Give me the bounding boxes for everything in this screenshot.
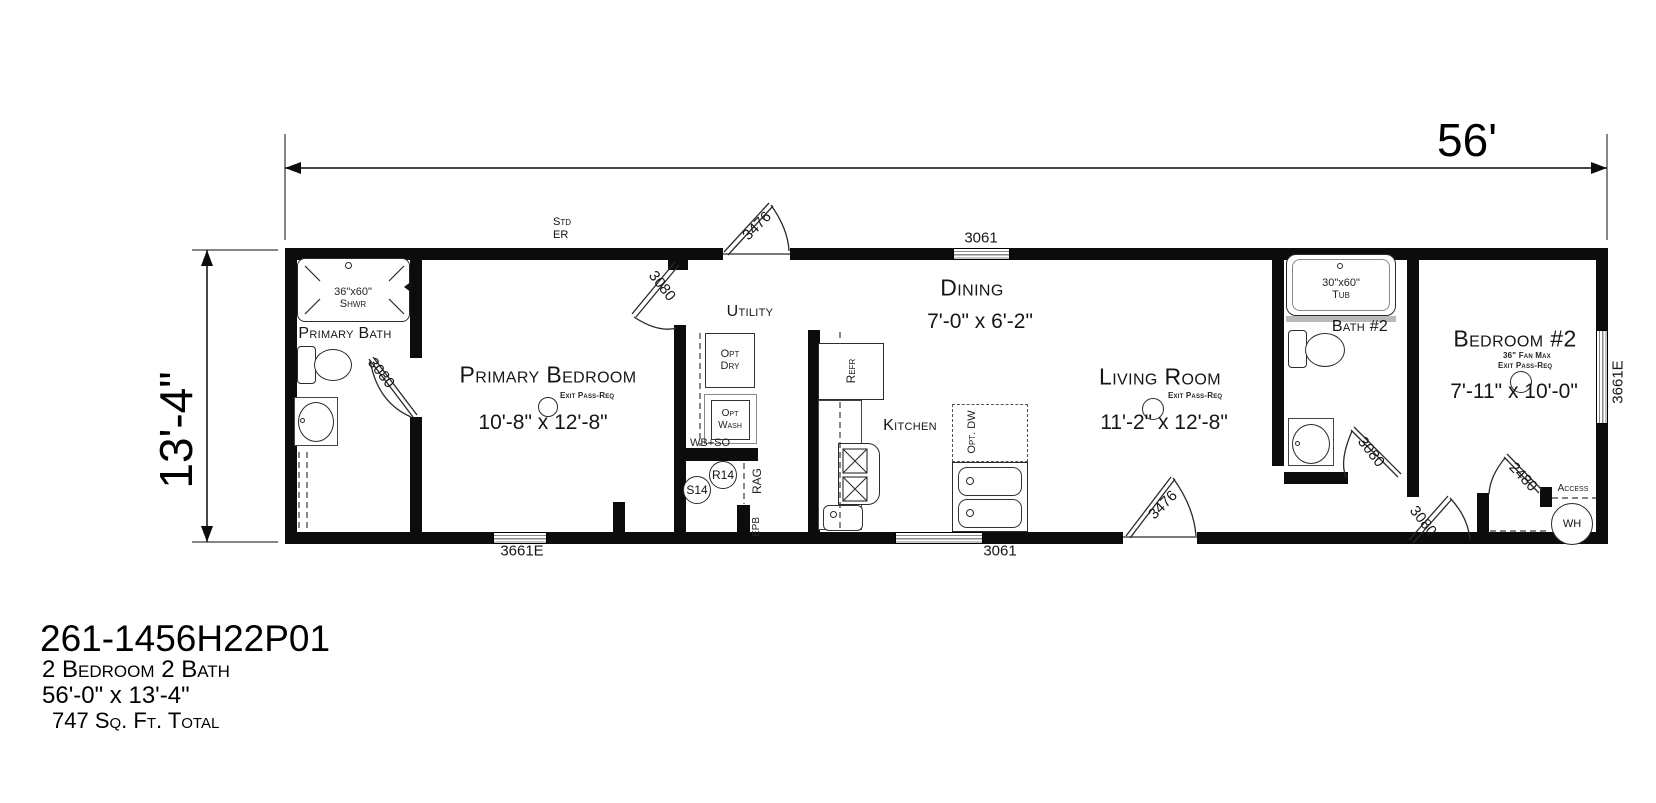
tub-text: Tub (1322, 289, 1360, 301)
plan-area: 747 Sq. Ft. Total (52, 708, 219, 734)
bedroom2-dims: 7'-11" x 10'-0" (1450, 380, 1578, 404)
right-side-window-label: 3661E (1610, 360, 1627, 403)
overall-width-dimension: 56' (1437, 113, 1497, 167)
refrigerator-label: Refr (845, 359, 857, 384)
opt-dryer-label: Opt Dry (714, 348, 746, 372)
dining-dims: 7'-0" x 6'-2" (927, 310, 1033, 334)
front-left-window-label: 3661E (500, 543, 543, 560)
beds-baths: 2 Bedroom 2 Bath (42, 656, 230, 684)
floor-plan: S14 R14 WH (0, 0, 1656, 803)
range-burners (843, 449, 867, 501)
primary-bedroom-note: Exit Pass-Req (560, 391, 614, 400)
overall-height-dimension: 13'-4" (149, 371, 203, 488)
living-room-note: Exit Pass-Req (1168, 391, 1222, 400)
living-room-label: Living Room (1099, 364, 1221, 391)
std-er-note: Std ER (553, 216, 571, 242)
bath2-label: Bath #2 (1332, 318, 1388, 336)
access-label: Access (1558, 483, 1589, 495)
wb-so-label: WB+SO (690, 437, 730, 449)
floorplan-lineart (0, 0, 1656, 803)
primary-bedroom-dims: 10'-8" x 12'-8" (478, 411, 607, 435)
primary-bath-label: Primary Bath (298, 325, 391, 343)
opt-washer-label: Opt Wash (713, 408, 747, 432)
bedroom2-label: Bedroom #2 (1453, 326, 1576, 353)
plan-size: 56'-0" x 13'-4" (42, 682, 190, 710)
kitchen-label: Kitchen (883, 417, 937, 435)
bedroom2-fan-note: 36" Fan Max (1503, 351, 1551, 360)
dining-label: Dining (940, 275, 1003, 302)
shower-size: 36"x60" (334, 286, 372, 298)
epb-label: EPB (751, 517, 763, 537)
shower-size-label: 36"x60" Shwr (334, 286, 372, 310)
shower-text: Shwr (334, 298, 372, 310)
primary-bedroom-label: Primary Bedroom (459, 362, 636, 389)
rear-window-label: 3061 (983, 543, 1016, 560)
tub-size-label: 30"x60" Tub (1322, 277, 1360, 301)
dimension-lines (192, 134, 1607, 542)
dining-window-label: 3061 (964, 230, 997, 247)
living-room-dims: 11'-2" x 12'-8" (1100, 411, 1228, 435)
utility-label: Utility (727, 303, 774, 321)
std-note-line1: Std (553, 216, 571, 229)
model-number: 261-1456H22P01 (40, 618, 330, 660)
opt-dw-label: Opt. DW (966, 410, 978, 453)
bedroom2-exit-note: Exit Pass-Req (1498, 361, 1552, 370)
rag-label: RAG (751, 468, 763, 494)
tub-size: 30"x60" (1322, 277, 1360, 289)
std-note-line2: ER (553, 229, 571, 242)
